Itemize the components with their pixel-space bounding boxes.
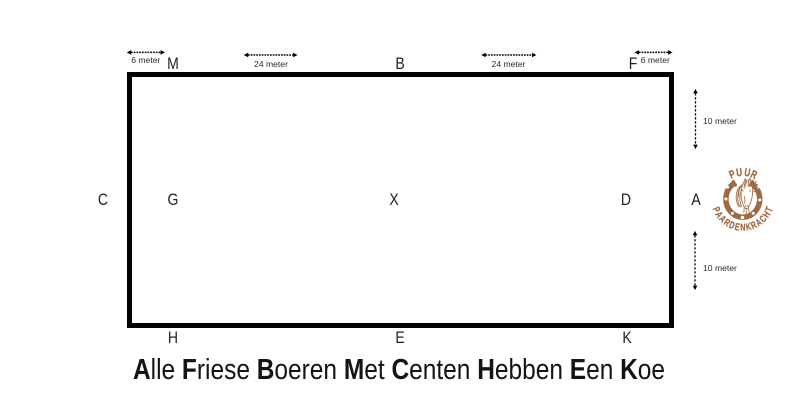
svg-text:U: U	[736, 167, 743, 180]
